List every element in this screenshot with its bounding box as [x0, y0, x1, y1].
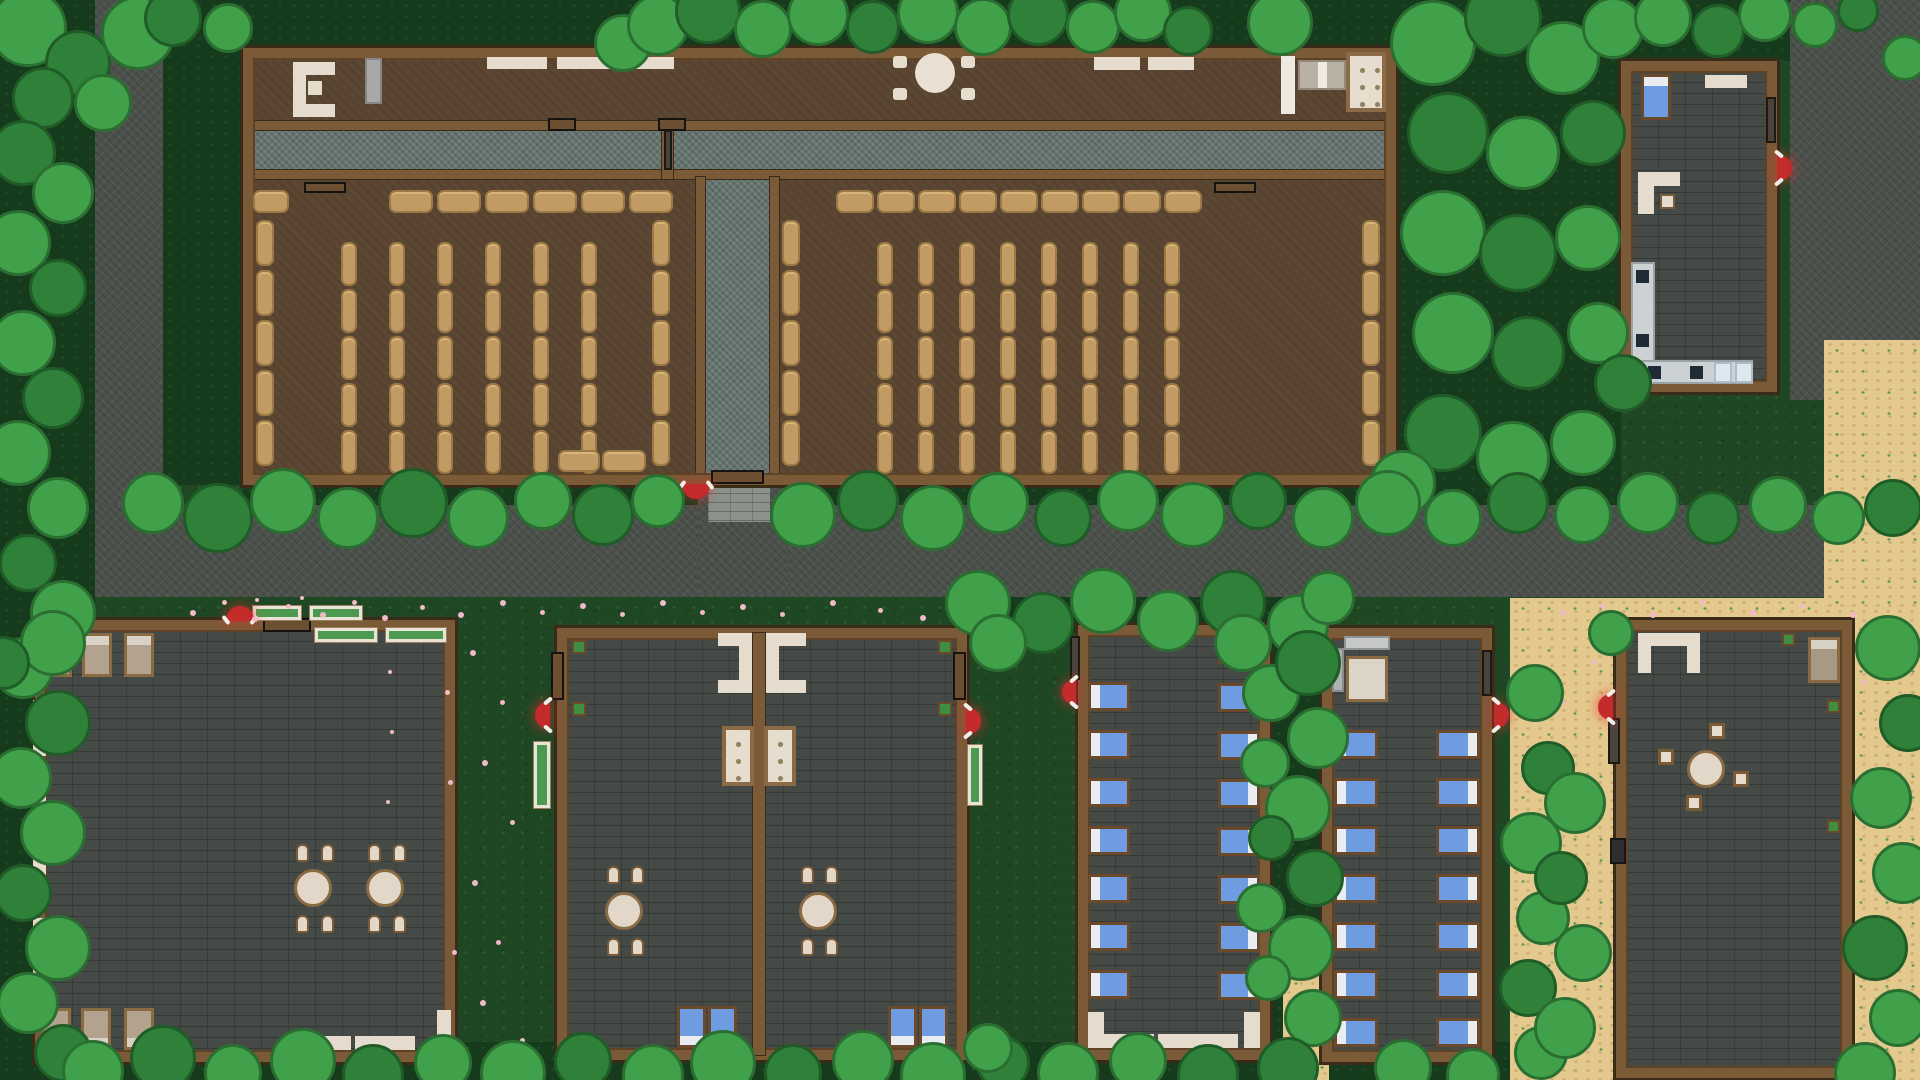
pew-top-row[interactable] — [533, 190, 577, 213]
tree-canopy — [1275, 630, 1341, 696]
building-great-hall — [243, 48, 1396, 485]
pew-left-wall[interactable] — [782, 320, 800, 366]
tree-canopy — [1691, 4, 1745, 58]
tree-canopy — [25, 915, 91, 981]
tree-canopy — [27, 477, 89, 539]
pew-block-left-hall[interactable] — [341, 430, 357, 474]
blossom-petal — [222, 600, 227, 605]
pew-top-row[interactable] — [485, 190, 529, 213]
tree-canopy — [1749, 476, 1807, 534]
blossom-petal — [500, 600, 506, 606]
tree-canopy — [447, 487, 509, 549]
stool[interactable] — [1660, 194, 1675, 209]
door[interactable] — [551, 652, 564, 700]
pew[interactable] — [602, 450, 646, 472]
bed-column-right[interactable] — [1436, 778, 1480, 807]
chair[interactable] — [321, 915, 334, 933]
bed[interactable] — [124, 633, 154, 677]
bed-column-left[interactable] — [1334, 970, 1378, 999]
chair[interactable] — [801, 938, 814, 956]
pew-block-right-hall[interactable] — [959, 242, 975, 286]
tree-canopy — [1842, 915, 1908, 981]
white-slab — [1281, 56, 1295, 114]
tree-canopy — [1407, 92, 1489, 174]
pew-block-right-hall[interactable] — [877, 289, 893, 333]
pew-left-wall[interactable] — [782, 270, 800, 316]
blossom-petal — [1750, 610, 1756, 616]
pew-block-right-hall[interactable] — [1000, 383, 1016, 427]
blossom-petal — [660, 600, 666, 606]
tree-canopy — [1034, 489, 1092, 547]
blossom-petal — [458, 612, 464, 618]
pew-block-right-hall[interactable] — [918, 336, 934, 380]
pew-block-left-hall[interactable] — [485, 242, 501, 286]
pew-block-left-hall[interactable] — [533, 430, 549, 474]
pew-top-row[interactable] — [1041, 190, 1079, 213]
pew-right-wall[interactable] — [652, 420, 670, 466]
pew-top-row[interactable] — [629, 190, 673, 213]
pew-left-wall[interactable] — [256, 270, 274, 316]
pew-block-right-hall[interactable] — [1082, 242, 1098, 286]
tree-canopy — [1390, 0, 1476, 86]
tree-canopy — [1554, 924, 1612, 982]
tree-canopy — [22, 367, 84, 429]
pew-block-left-hall[interactable] — [341, 383, 357, 427]
south-door[interactable] — [711, 470, 764, 484]
blossom-petal — [496, 940, 501, 945]
stool[interactable] — [1658, 749, 1674, 765]
game-board[interactable] — [722, 726, 754, 786]
door[interactable] — [664, 130, 672, 170]
pew-block-left-hall[interactable] — [437, 242, 453, 286]
pew-block-right-hall[interactable] — [1041, 242, 1057, 286]
pew-block-left-hall[interactable] — [389, 336, 405, 380]
tree-canopy — [1491, 316, 1565, 390]
door[interactable] — [304, 182, 346, 193]
pew-block-left-hall[interactable] — [389, 383, 405, 427]
chair[interactable] — [296, 844, 309, 862]
round-table[interactable] — [799, 892, 837, 930]
tree-canopy — [1487, 472, 1549, 534]
pew-block-left-hall[interactable] — [389, 430, 405, 474]
tree-canopy — [1412, 292, 1494, 374]
blossom-petal — [830, 600, 836, 606]
vestibule-bottom — [718, 680, 752, 693]
bed[interactable] — [888, 1006, 917, 1048]
chair[interactable] — [368, 915, 381, 933]
bed-column-left[interactable] — [1088, 970, 1130, 999]
tree-canopy — [1617, 472, 1679, 534]
tree-canopy — [1534, 997, 1596, 1059]
wall-table[interactable] — [1148, 57, 1194, 70]
tree-canopy — [572, 484, 634, 546]
door[interactable] — [548, 118, 576, 131]
blossom-petal — [878, 608, 883, 613]
tree-canopy — [1287, 707, 1349, 769]
vestibule-side — [766, 646, 779, 680]
blossom-petal — [1600, 604, 1605, 609]
tree-canopy — [1355, 470, 1421, 536]
pew-block-left-hall[interactable] — [485, 430, 501, 474]
pew-block-right-hall[interactable] — [959, 383, 975, 427]
chair[interactable] — [607, 866, 620, 884]
pew-block-right-hall[interactable] — [877, 242, 893, 286]
tree-canopy — [1506, 664, 1564, 722]
locker[interactable] — [1344, 636, 1390, 650]
blossom-petal — [386, 800, 390, 804]
stove[interactable] — [1690, 366, 1703, 379]
tree-canopy — [1550, 410, 1616, 476]
pew-block-right-hall[interactable] — [1000, 430, 1016, 474]
chair[interactable] — [893, 56, 907, 68]
pew-block-right-hall[interactable] — [1164, 336, 1180, 380]
tree-canopy — [1534, 851, 1588, 905]
pew-block-right-hall[interactable] — [1000, 242, 1016, 286]
furnace[interactable] — [1610, 838, 1626, 864]
tree-canopy — [74, 74, 132, 132]
pew-block-left-hall[interactable] — [533, 383, 549, 427]
bed-column-right[interactable] — [1436, 1018, 1480, 1047]
bed-column-left[interactable] — [1088, 778, 1130, 807]
blossom-petal — [388, 670, 392, 674]
chair[interactable] — [321, 844, 334, 862]
pew-top-row[interactable] — [959, 190, 997, 213]
tree-canopy — [514, 472, 572, 530]
flower-box[interactable] — [386, 628, 446, 642]
tree-canopy — [1245, 955, 1291, 1001]
pew-block-left-hall[interactable] — [581, 336, 597, 380]
bed[interactable] — [1808, 637, 1840, 683]
tree-canopy — [32, 162, 94, 224]
flower-box[interactable] — [315, 628, 377, 642]
fridge[interactable] — [1714, 362, 1732, 383]
pew-right-wall[interactable] — [1362, 420, 1380, 466]
pew-block-right-hall[interactable] — [877, 383, 893, 427]
pew-block-right-hall[interactable] — [1041, 336, 1057, 380]
pew-top-row[interactable] — [389, 190, 433, 213]
pew-right-wall[interactable] — [1362, 320, 1380, 366]
pew-block-left-hall[interactable] — [581, 242, 597, 286]
pew-block-right-hall[interactable] — [918, 383, 934, 427]
blossom-petal — [1700, 600, 1705, 605]
pew-block-right-hall[interactable] — [1082, 336, 1098, 380]
tree-canopy — [1792, 2, 1838, 48]
pew-block-right-hall[interactable] — [1164, 242, 1180, 286]
pew[interactable] — [558, 450, 600, 472]
pew-block-left-hall[interactable] — [485, 383, 501, 427]
pew-right-wall[interactable] — [1362, 270, 1380, 316]
stool[interactable] — [1686, 795, 1702, 811]
bed[interactable] — [1641, 74, 1671, 120]
tree-canopy — [1869, 989, 1920, 1047]
pew-block-right-hall[interactable] — [1082, 430, 1098, 474]
chair[interactable] — [393, 844, 406, 862]
bed-column-left[interactable] — [1334, 922, 1378, 951]
pew-block-left-hall[interactable] — [389, 289, 405, 333]
pew-block-right-hall[interactable] — [918, 289, 934, 333]
chair[interactable] — [607, 938, 620, 956]
tree-canopy — [1544, 772, 1606, 834]
fridge[interactable] — [1735, 362, 1753, 383]
pew-block-right-hall[interactable] — [1164, 289, 1180, 333]
pew-block-right-hall[interactable] — [959, 336, 975, 380]
pew-block-left-hall[interactable] — [485, 289, 501, 333]
square-table[interactable] — [1346, 656, 1388, 702]
pew-block-right-hall[interactable] — [1164, 383, 1180, 427]
door[interactable] — [1214, 182, 1256, 193]
bed-column-right[interactable] — [1436, 826, 1480, 855]
pew-right-wall[interactable] — [1362, 220, 1380, 266]
door[interactable] — [1766, 97, 1776, 143]
tree-canopy — [900, 485, 966, 551]
blossom-petal — [470, 650, 476, 656]
pew-right-wall[interactable] — [652, 370, 670, 416]
game-board[interactable] — [1346, 52, 1386, 112]
pew-block-right-hall[interactable] — [918, 430, 934, 474]
pew-top-row[interactable] — [836, 190, 874, 213]
blossom-petal — [780, 612, 785, 617]
pew-left-wall[interactable] — [782, 370, 800, 416]
blossom-petal — [300, 596, 304, 600]
pew-top-row[interactable] — [877, 190, 915, 213]
vestibule-top — [766, 633, 806, 646]
door[interactable] — [263, 618, 311, 632]
bed-column-left[interactable] — [1088, 826, 1130, 855]
pew-block-left-hall[interactable] — [533, 336, 549, 380]
blossom-petal — [700, 610, 705, 615]
tree-canopy — [1070, 568, 1136, 634]
chair[interactable] — [961, 56, 975, 68]
bed-column-right[interactable] — [1436, 922, 1480, 951]
bed-column-left[interactable] — [1334, 826, 1378, 855]
pew-block-right-hall[interactable] — [877, 336, 893, 380]
podium-left-bar — [293, 62, 306, 117]
chair[interactable] — [801, 866, 814, 884]
pew-right-wall[interactable] — [652, 270, 670, 316]
wall-table[interactable] — [487, 57, 547, 69]
pew-right-wall[interactable] — [652, 220, 670, 266]
pew-left-wall[interactable] — [256, 320, 274, 366]
stove[interactable] — [1636, 334, 1649, 347]
bed-column-right[interactable] — [1436, 874, 1480, 903]
tree-canopy — [1686, 491, 1740, 545]
door[interactable] — [953, 652, 966, 700]
tree-canopy — [1400, 190, 1486, 276]
wall-table[interactable] — [1705, 75, 1747, 88]
tree-canopy — [317, 487, 379, 549]
round-table[interactable] — [1687, 750, 1725, 788]
gray-bench[interactable] — [365, 58, 382, 104]
bed-column-left[interactable] — [1088, 682, 1130, 711]
pew-block-left-hall[interactable] — [533, 242, 549, 286]
pew-top-row[interactable] — [1082, 190, 1120, 213]
pew-block-left-hall[interactable] — [437, 289, 453, 333]
garden-planter[interactable] — [253, 606, 301, 620]
pew-block-left-hall[interactable] — [437, 430, 453, 474]
vestibule-side — [739, 646, 752, 680]
vestibule-top — [718, 633, 752, 646]
chair[interactable] — [631, 866, 644, 884]
blossom-petal — [740, 604, 746, 610]
chair[interactable] — [631, 938, 644, 956]
desk-right-leg — [1687, 646, 1700, 673]
blossom-petal — [190, 610, 196, 616]
pew-block-right-hall[interactable] — [1082, 289, 1098, 333]
chair[interactable] — [825, 938, 838, 956]
bell[interactable] — [1062, 680, 1076, 704]
tree-canopy — [969, 614, 1027, 672]
stove[interactable] — [1636, 270, 1649, 283]
pew-block-right-hall[interactable] — [1123, 383, 1139, 427]
chair[interactable] — [296, 915, 309, 933]
bed-column-left[interactable] — [1334, 778, 1378, 807]
blossom-petal — [1650, 612, 1656, 618]
bed-column-left[interactable] — [1088, 922, 1130, 951]
bed[interactable] — [82, 633, 112, 677]
chair[interactable] — [893, 88, 907, 100]
tree-canopy — [1292, 487, 1354, 549]
pew-block-right-hall[interactable] — [1000, 336, 1016, 380]
pew-block-right-hall[interactable] — [1123, 242, 1139, 286]
pew-block-right-hall[interactable] — [1123, 430, 1139, 474]
tree-canopy — [1236, 883, 1286, 933]
pew-block-right-hall[interactable] — [1041, 430, 1057, 474]
hedge-west-of-church — [163, 40, 243, 485]
chair[interactable] — [368, 844, 381, 862]
round-table[interactable] — [915, 53, 955, 93]
pew-block-left-hall[interactable] — [485, 336, 501, 380]
pew-top-row[interactable] — [581, 190, 625, 213]
game-board[interactable] — [764, 726, 796, 786]
blossom-petal — [580, 603, 586, 609]
bed-column-left[interactable] — [1088, 730, 1130, 759]
chair[interactable] — [961, 88, 975, 100]
stool[interactable] — [1709, 723, 1725, 739]
round-table[interactable] — [294, 869, 332, 907]
pew-top-row[interactable] — [437, 190, 481, 213]
south-door-apron — [708, 484, 770, 522]
tree-canopy — [1214, 614, 1272, 672]
building-sand-house — [1616, 620, 1852, 1078]
wall-table[interactable] — [1094, 57, 1140, 70]
pew-block-right-hall[interactable] — [1164, 430, 1180, 474]
blossom-petal — [255, 598, 259, 602]
bed-column-right[interactable] — [1436, 970, 1480, 999]
pew[interactable] — [253, 190, 289, 213]
stool[interactable] — [1733, 771, 1749, 787]
counter-top[interactable] — [1638, 172, 1680, 186]
pew-block-left-hall[interactable] — [581, 289, 597, 333]
tree-canopy — [183, 483, 253, 553]
village-overhead-map — [0, 0, 1920, 1080]
pew-top-row[interactable] — [1164, 190, 1202, 213]
bell[interactable] — [1494, 702, 1509, 728]
tree-canopy — [1424, 489, 1482, 547]
blossom-petal — [1862, 680, 1867, 685]
potted-plant — [572, 702, 586, 716]
pew-block-left-hall[interactable] — [341, 336, 357, 380]
pew-block-right-hall[interactable] — [1000, 289, 1016, 333]
pew-block-right-hall[interactable] — [877, 430, 893, 474]
round-table[interactable] — [366, 869, 404, 907]
blossom-petal — [482, 760, 488, 766]
pew-right-wall[interactable] — [652, 320, 670, 366]
pew-block-right-hall[interactable] — [1082, 383, 1098, 427]
white-cloth — [1318, 62, 1327, 88]
tree-canopy — [954, 0, 1012, 56]
garden-planter[interactable] — [968, 745, 982, 805]
door[interactable] — [1070, 636, 1080, 680]
door[interactable] — [658, 118, 686, 131]
tree-canopy — [1850, 767, 1912, 829]
pew-block-left-hall[interactable] — [389, 242, 405, 286]
door[interactable] — [1482, 650, 1492, 696]
desk-top-bar — [1638, 633, 1700, 646]
pew-left-wall[interactable] — [256, 420, 274, 466]
pew-top-row[interactable] — [1000, 190, 1038, 213]
potted-plant — [938, 702, 952, 716]
bell[interactable] — [535, 702, 550, 728]
pew-block-right-hall[interactable] — [1041, 383, 1057, 427]
pew-block-right-hall[interactable] — [1041, 289, 1057, 333]
pew-block-right-hall[interactable] — [918, 242, 934, 286]
pew-left-wall[interactable] — [782, 420, 800, 466]
pew-left-wall[interactable] — [256, 370, 274, 416]
pew-block-right-hall[interactable] — [1123, 336, 1139, 380]
chair[interactable] — [825, 866, 838, 884]
pew-block-left-hall[interactable] — [437, 383, 453, 427]
tree-canopy — [1882, 35, 1920, 81]
podium-stool — [308, 81, 322, 95]
pew-left-wall[interactable] — [782, 220, 800, 266]
pew-block-left-hall[interactable] — [341, 242, 357, 286]
chair[interactable] — [393, 915, 406, 933]
bell[interactable] — [226, 606, 254, 621]
pew-block-left-hall[interactable] — [533, 289, 549, 333]
tree-canopy — [1588, 610, 1634, 656]
blossom-petal — [320, 612, 326, 618]
blossom-petal — [500, 700, 505, 705]
bed-column-left[interactable] — [1088, 874, 1130, 903]
pew-left-wall[interactable] — [256, 220, 274, 266]
desk-left-leg — [1638, 646, 1651, 673]
tree-canopy — [1240, 738, 1290, 788]
pew-top-row[interactable] — [918, 190, 956, 213]
round-table[interactable] — [605, 892, 643, 930]
blossom-petal — [382, 615, 388, 621]
garden-planter[interactable] — [310, 606, 362, 620]
pew-right-wall[interactable] — [1362, 370, 1380, 416]
bell[interactable] — [966, 708, 981, 734]
pew-block-left-hall[interactable] — [341, 289, 357, 333]
pew-block-right-hall[interactable] — [1123, 289, 1139, 333]
counter-leg[interactable] — [1638, 186, 1654, 214]
pew-block-right-hall[interactable] — [959, 289, 975, 333]
tree-canopy — [631, 474, 685, 528]
garden-planter[interactable] — [534, 742, 550, 808]
tree-canopy — [1248, 815, 1294, 861]
tree-canopy — [1066, 0, 1120, 54]
tree-canopy — [1160, 482, 1226, 548]
bench[interactable] — [1244, 1012, 1260, 1048]
pew-block-left-hall[interactable] — [437, 336, 453, 380]
pew-block-right-hall[interactable] — [959, 430, 975, 474]
dining-center-wall — [752, 632, 766, 1056]
pew-top-row[interactable] — [1123, 190, 1161, 213]
pew-block-left-hall[interactable] — [581, 383, 597, 427]
tree-canopy — [1137, 590, 1199, 652]
bed-column-right[interactable] — [1436, 730, 1480, 759]
